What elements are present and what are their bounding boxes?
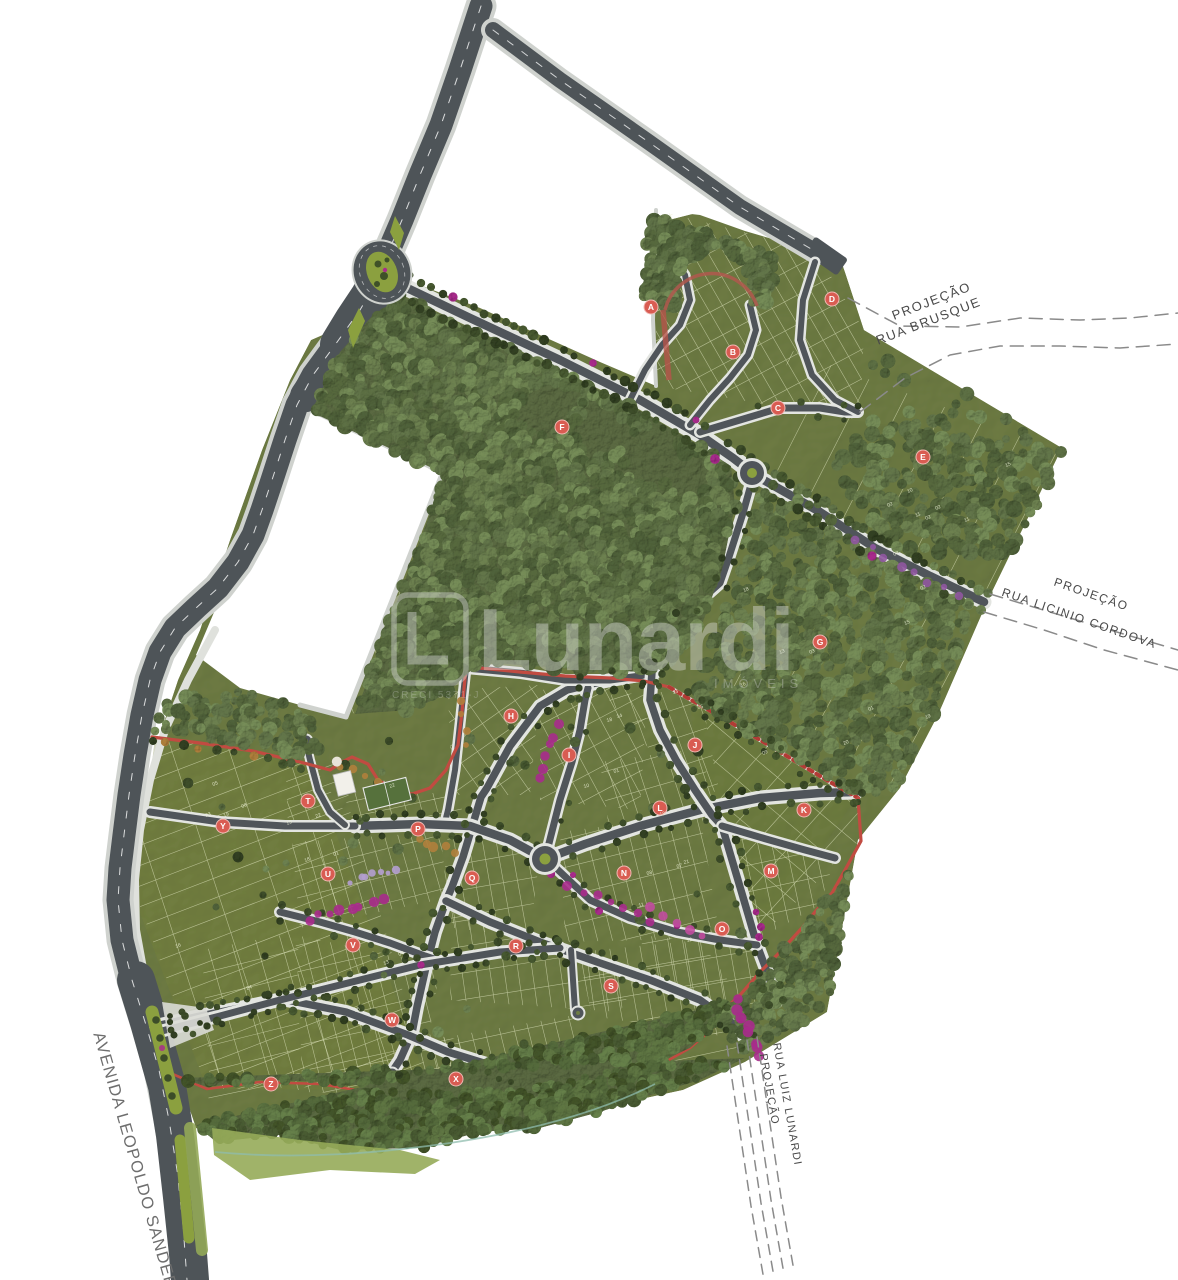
- svg-text:U: U: [325, 869, 331, 879]
- svg-text:R: R: [513, 941, 519, 951]
- svg-text:V: V: [350, 940, 356, 950]
- svg-text:N: N: [621, 868, 627, 878]
- svg-text:B: B: [730, 347, 736, 357]
- svg-text:O: O: [719, 924, 726, 934]
- svg-text:IMÓVEIS: IMÓVEIS: [714, 676, 803, 691]
- svg-text:J: J: [693, 740, 698, 750]
- svg-text:W: W: [388, 1015, 397, 1025]
- svg-text:Q: Q: [469, 873, 476, 883]
- svg-text:E: E: [920, 452, 926, 462]
- svg-text:G: G: [817, 637, 824, 647]
- svg-text:T: T: [305, 796, 311, 806]
- svg-text:F: F: [559, 422, 564, 432]
- svg-text:Z: Z: [268, 1079, 273, 1089]
- svg-text:P: P: [415, 824, 421, 834]
- svg-text:CRECI 5371-J: CRECI 5371-J: [392, 690, 480, 701]
- svg-text:K: K: [801, 805, 808, 815]
- svg-text:S: S: [608, 981, 614, 991]
- svg-text:Y: Y: [220, 821, 226, 831]
- svg-text:H: H: [508, 711, 514, 721]
- svg-text:M: M: [767, 866, 774, 876]
- svg-text:Lunardi: Lunardi: [478, 590, 794, 689]
- svg-text:I: I: [568, 750, 570, 760]
- svg-text:C: C: [775, 403, 781, 413]
- svg-text:X: X: [453, 1074, 459, 1084]
- svg-text:D: D: [829, 294, 835, 304]
- svg-text:A: A: [648, 302, 654, 312]
